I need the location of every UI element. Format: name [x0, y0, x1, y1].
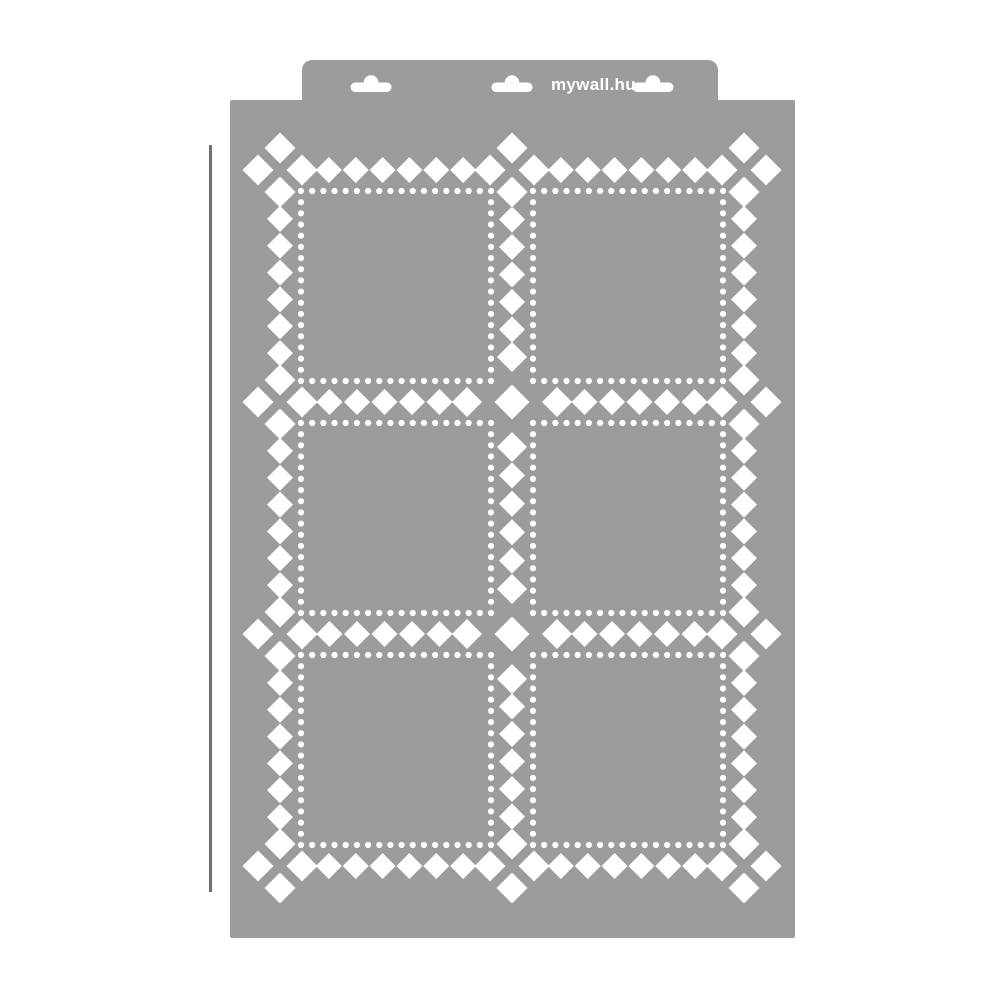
stencil-sheet-image: mywall.hu [0, 0, 1001, 1000]
product-photo: mywall.hu [0, 0, 1001, 1000]
brand-logo-text: mywall.hu [551, 75, 636, 94]
